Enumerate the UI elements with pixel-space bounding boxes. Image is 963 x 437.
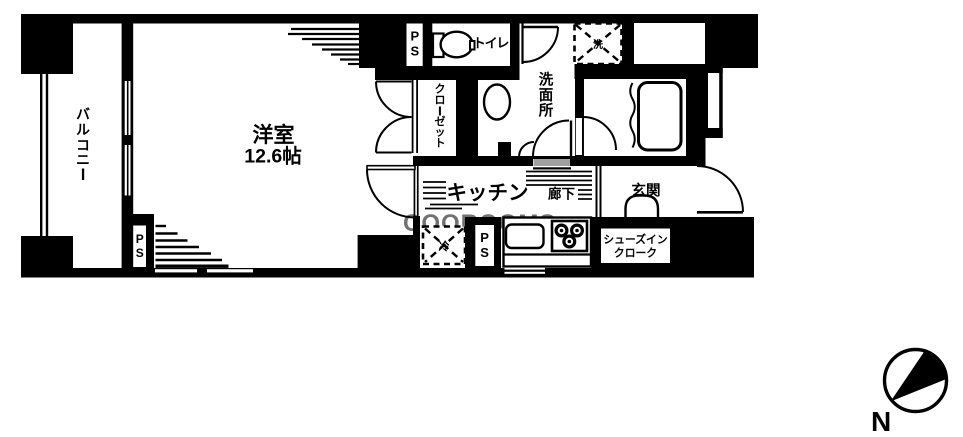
svg-text:クローク: クローク: [614, 247, 657, 260]
svg-text:所: 所: [539, 103, 554, 120]
svg-text:P: P: [480, 230, 489, 245]
svg-text:シューズイン: シューズイン: [603, 232, 667, 246]
svg-text:ロ: ロ: [435, 95, 446, 107]
svg-text:冷: 冷: [439, 239, 450, 253]
svg-text:N: N: [871, 406, 891, 437]
svg-text:ニ: ニ: [76, 153, 90, 168]
svg-text:廊下: 廊下: [548, 186, 576, 202]
svg-text:キッチン: キッチン: [447, 182, 529, 205]
svg-text:ト: ト: [435, 138, 446, 150]
svg-text:洗: 洗: [593, 38, 603, 51]
svg-text:P: P: [410, 29, 419, 44]
svg-text:洗: 洗: [539, 71, 554, 89]
svg-text:面: 面: [539, 87, 554, 104]
svg-text:12.6帖: 12.6帖: [244, 145, 302, 168]
svg-text:P: P: [136, 232, 144, 246]
svg-text:コ: コ: [76, 138, 90, 153]
svg-text:S: S: [410, 44, 419, 59]
svg-text:トイレ: トイレ: [473, 36, 510, 51]
svg-text:洋室: 洋室: [253, 123, 295, 147]
svg-text:ル: ル: [76, 123, 90, 138]
svg-text:S: S: [136, 246, 144, 260]
svg-text:バ: バ: [76, 107, 90, 122]
svg-text:S: S: [480, 245, 489, 260]
